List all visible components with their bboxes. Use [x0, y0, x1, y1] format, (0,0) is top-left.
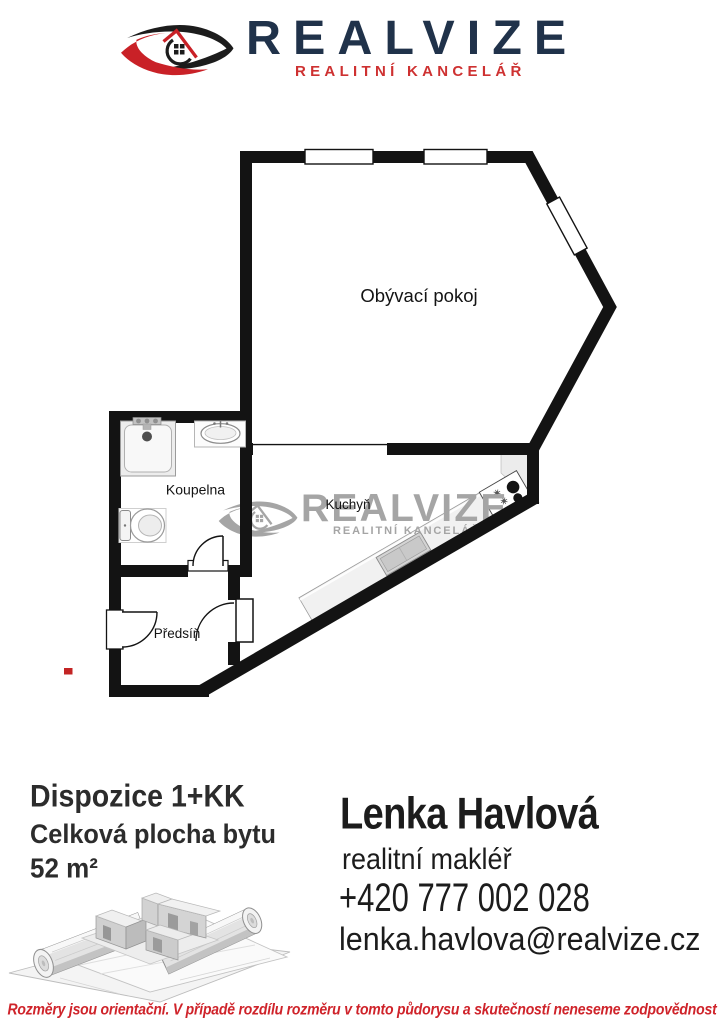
- svg-text:Předsíň: Předsíň: [154, 626, 201, 641]
- svg-text:Obývací pokoj: Obývací pokoj: [360, 285, 477, 306]
- svg-text:Kuchyň: Kuchyň: [325, 497, 370, 512]
- svg-text:Koupelna: Koupelna: [166, 482, 225, 498]
